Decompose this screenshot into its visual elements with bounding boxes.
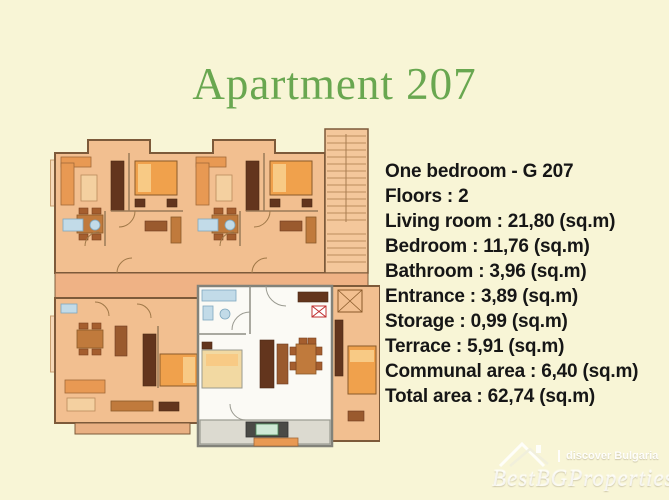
watermark-tagline: discover Bulgaria <box>558 450 658 462</box>
page-title: Apartment 207 <box>0 58 669 110</box>
bottom-left-terrace <box>75 423 190 434</box>
detail-line-total-area: Total area : 62,74 (sq.m) <box>385 384 663 409</box>
detail-line-communal-area: Communal area : 6,40 (sq.m) <box>385 359 663 384</box>
house-logo-icon <box>496 436 554 470</box>
detail-line-floors: Floors : 2 <box>385 184 663 209</box>
detail-line-living-room: Living room : 21,80 (sq.m) <box>385 209 663 234</box>
detail-line-bedroom: Bedroom : 11,76 (sq.m) <box>385 234 663 259</box>
floorplan <box>50 126 380 461</box>
detail-line-terrace: Terrace : 5,91 (sq.m) <box>385 334 663 359</box>
apartment-details: One bedroom - G 207 Floors : 2 Living ro… <box>385 159 663 409</box>
staircase <box>325 129 368 273</box>
detail-line-entrance: Entrance : 3,89 (sq.m) <box>385 284 663 309</box>
detail-line-unit: One bedroom - G 207 <box>385 159 663 184</box>
detail-line-bathroom: Bathroom : 3,96 (sq.m) <box>385 259 663 284</box>
floorplan-image <box>50 126 380 461</box>
watermark: discover Bulgaria BestBGProperties <box>488 434 669 498</box>
watermark-brand: BestBGProperties <box>492 466 669 492</box>
top-apartments-block <box>55 140 325 273</box>
detail-line-storage: Storage : 0,99 (sq.m) <box>385 309 663 334</box>
apartment-207-highlighted <box>198 286 332 446</box>
listing-image: Apartment 207 <box>0 0 669 500</box>
